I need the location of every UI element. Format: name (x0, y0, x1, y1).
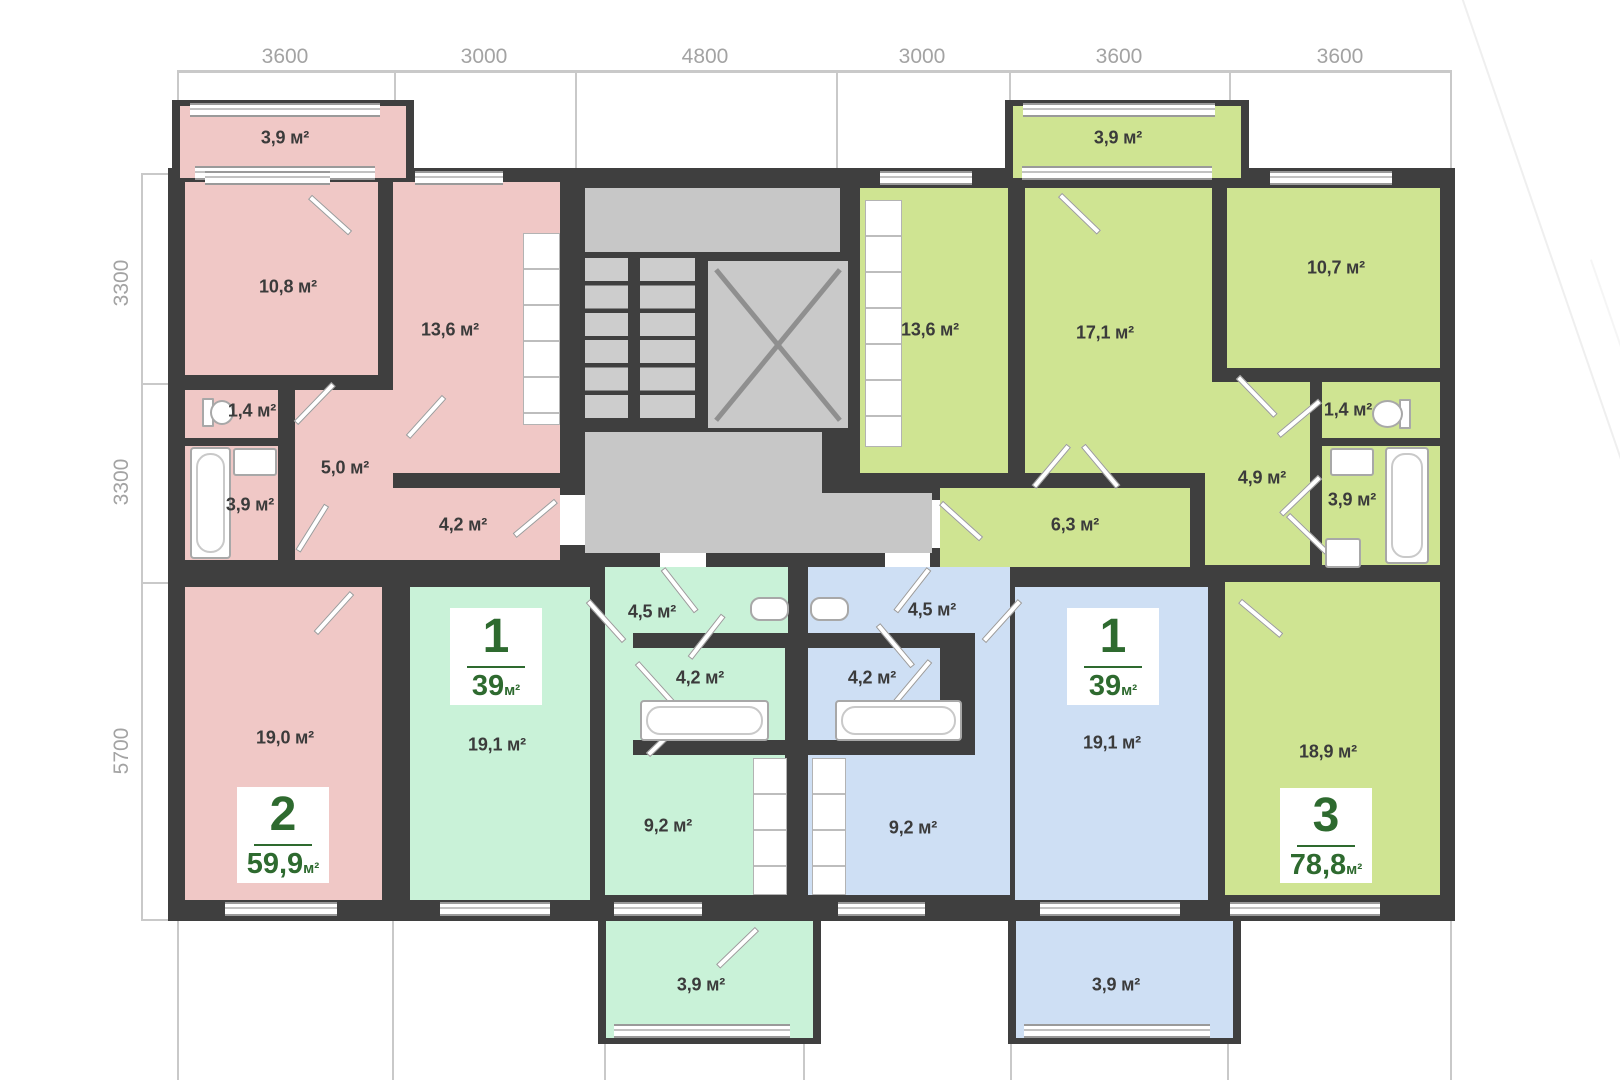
stair-vestibule (585, 188, 840, 252)
badge-number: 1 (483, 613, 510, 661)
apartment-badge-2: 2 59,9м² (237, 787, 329, 883)
badge-area: 39м² (1089, 672, 1137, 701)
room-label: 19,0 м² (256, 728, 314, 749)
dim-tick (141, 173, 171, 175)
badge-area: 39м² (472, 672, 520, 701)
room-label: 4,2 м² (439, 515, 487, 536)
window (440, 902, 550, 916)
door-opening-apt1b (885, 553, 930, 567)
watermark-line (1448, 0, 1620, 1080)
door-opening-apt2 (560, 495, 585, 545)
room-label: 19,1 м² (468, 735, 526, 756)
dim-line-top (177, 70, 1452, 73)
room-label: 4,5 м² (908, 600, 956, 621)
room-label: 17,1 м² (1076, 323, 1134, 344)
balcony-window (190, 103, 380, 117)
dim-tick (1450, 70, 1452, 171)
common-hall (585, 432, 822, 553)
window (225, 902, 337, 916)
dim-label-top: 3000 (461, 45, 508, 69)
window (1230, 902, 1380, 916)
room-label: 4,9 м² (1238, 468, 1286, 489)
window (415, 171, 503, 185)
room-label: 3,9 м² (677, 975, 725, 996)
sink-icon (233, 448, 277, 476)
apartment-badge-1b: 1 39м² (1067, 608, 1159, 705)
room-label: 4,2 м² (676, 668, 724, 689)
dim-tick (141, 582, 171, 584)
dim-label-top: 3600 (1096, 45, 1143, 69)
sink-icon (1330, 448, 1374, 476)
kitchen-counter-icon (753, 758, 787, 895)
bathtub-icon (835, 700, 962, 741)
balcony-window (614, 1024, 790, 1038)
window (880, 171, 972, 185)
dim-tick (836, 70, 838, 171)
dim-tick (575, 70, 577, 171)
washing-machine-icon (1325, 538, 1361, 568)
badge-area: 78,8м² (1290, 851, 1363, 880)
window (838, 902, 925, 916)
dim-tick (141, 919, 171, 921)
dim-label-left: 3300 (110, 260, 134, 307)
badge-rule (1084, 666, 1141, 668)
dim-label-top: 3000 (899, 45, 946, 69)
sink-icon (750, 597, 789, 621)
room-label: 1,4 м² (228, 401, 276, 422)
window (614, 902, 702, 916)
window (205, 171, 330, 185)
room-label: 3,9 м² (1328, 490, 1376, 511)
room-label: 13,6 м² (421, 320, 479, 341)
window (1040, 902, 1180, 916)
kitchen-counter-icon (865, 200, 902, 447)
staircase (585, 258, 695, 422)
badge-rule (1297, 845, 1354, 847)
room-label: 10,7 м² (1307, 258, 1365, 279)
badge-rule (254, 844, 311, 846)
room-pass-apt1a (605, 633, 633, 755)
room-label: 3,9 м² (1092, 975, 1140, 996)
balcony-door-window (1022, 166, 1212, 180)
room-label: 9,2 м² (889, 818, 937, 839)
balcony-window (1023, 103, 1215, 117)
apartment-badge-1a: 1 39м² (450, 608, 542, 705)
dim-tick (392, 921, 394, 1080)
kitchen-counter-icon (523, 233, 560, 425)
room-label: 6,3 м² (1051, 515, 1099, 536)
bathtub-icon (190, 447, 231, 559)
balcony-window (1024, 1024, 1210, 1038)
room-label: 4,2 м² (848, 668, 896, 689)
room-label: 19,1 м² (1083, 733, 1141, 754)
kitchen-counter-icon (812, 758, 846, 895)
door-opening-apt3 (932, 500, 940, 548)
room-label: 4,5 м² (628, 602, 676, 623)
room-label: 13,6 м² (901, 320, 959, 341)
room-label: 1,4 м² (1324, 400, 1372, 421)
dim-tick (1450, 921, 1452, 1080)
dim-label-top: 3600 (262, 45, 309, 69)
dim-label-top: 3600 (1317, 45, 1364, 69)
window (1270, 171, 1392, 185)
room-label: 18,9 м² (1299, 742, 1357, 763)
room-label: 9,2 м² (644, 816, 692, 837)
apartment-badge-3: 3 78,8м² (1280, 788, 1372, 883)
dim-label-left: 3300 (110, 459, 134, 506)
badge-number: 1 (1100, 613, 1127, 661)
dim-tick (141, 383, 171, 385)
room-label: 3,9 м² (261, 128, 309, 149)
badge-area: 59,9м² (247, 850, 320, 879)
floor-plan: 3600 3000 4800 3000 3600 3600 3300 3300 … (0, 0, 1620, 1080)
dim-line-left (141, 173, 143, 921)
common-hall-arm (822, 493, 932, 553)
toilet-bowl-icon (1372, 400, 1403, 428)
sink-icon (810, 597, 849, 621)
dim-label-left: 5700 (110, 728, 134, 775)
badge-number: 2 (270, 791, 297, 839)
room-pass-apt1b (975, 633, 1010, 755)
badge-rule (467, 666, 524, 668)
room-label: 3,9 м² (226, 495, 274, 516)
room-label: 10,8 м² (259, 277, 317, 298)
room-label: 5,0 м² (321, 458, 369, 479)
stair-flight (640, 258, 695, 422)
door-opening-apt1a (660, 553, 706, 567)
room-label: 3,9 м² (1094, 128, 1142, 149)
badge-number: 3 (1313, 792, 1340, 840)
bathtub-icon (1385, 447, 1429, 564)
bathtub-icon (640, 700, 769, 741)
stair-flight (585, 258, 628, 422)
elevator-shaft (700, 253, 856, 436)
dim-label-top: 4800 (682, 45, 729, 69)
dim-tick (177, 921, 179, 1080)
